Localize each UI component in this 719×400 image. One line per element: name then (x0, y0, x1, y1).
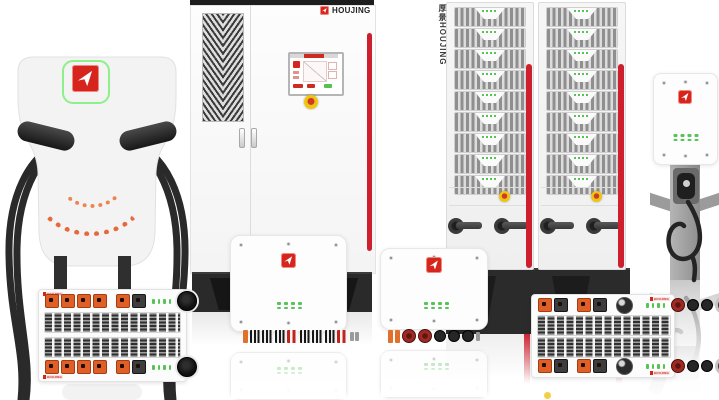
module-led-dots (482, 115, 498, 117)
status-led-green (284, 367, 288, 370)
module-led-dots (482, 136, 498, 138)
module-vent-notch (475, 176, 505, 187)
module-brand-mark: HOUJING (43, 375, 63, 379)
emergency-stop-button[interactable] (304, 95, 318, 109)
orange-connector[interactable] (45, 294, 59, 308)
wallbox-status-leds (424, 302, 449, 309)
status-led-green (431, 302, 435, 305)
orange-slim-connector[interactable] (395, 330, 400, 343)
orange-slim-connector[interactable] (243, 330, 248, 343)
status-led-green (646, 364, 649, 369)
orange-connector[interactable] (93, 294, 107, 308)
wallbox-inverter-a (230, 235, 347, 332)
orange-connector[interactable] (538, 298, 552, 312)
rack-power-module-slot (546, 133, 618, 153)
led-indicator-row (277, 372, 302, 375)
bracket-arm (650, 193, 670, 211)
socket-connector[interactable] (177, 357, 197, 377)
breaker-lever[interactable] (594, 222, 620, 229)
module-led-dots (482, 157, 498, 159)
led-indicator-row (277, 302, 302, 305)
rack-breaker-panel (447, 207, 533, 245)
module-vent-notch (475, 113, 505, 124)
orange-connector[interactable] (116, 294, 130, 308)
wallbox-status-leds (424, 363, 449, 370)
module-vent-notch (475, 8, 505, 19)
breaker-lever[interactable] (456, 222, 482, 229)
dark-connector[interactable] (132, 294, 146, 308)
orange-connector[interactable] (77, 294, 91, 308)
plane-glyph (77, 70, 94, 87)
wallbox-b-reflection (380, 350, 488, 398)
led-indicator-row (424, 302, 449, 305)
rack-tower-b (538, 2, 626, 270)
module-vent-notch (567, 8, 597, 19)
knob-connector[interactable] (616, 358, 633, 375)
breaker-switch[interactable] (448, 217, 486, 235)
orange-connector[interactable] (538, 359, 552, 373)
status-led-green (298, 372, 302, 375)
red-round-connector[interactable] (402, 329, 416, 343)
rack-brand-vertical: 厚景HOUJING (437, 4, 448, 84)
status-led-group (646, 303, 665, 308)
orange-connector[interactable] (93, 360, 107, 374)
module-vent-notch (475, 29, 505, 40)
status-led-green (284, 302, 288, 305)
houjing-logo-icon (320, 6, 329, 15)
rack-power-module-slot (454, 28, 526, 48)
module-vent-notch (567, 113, 597, 124)
connector-gap (570, 366, 575, 367)
status-led-green (445, 363, 449, 366)
charger-wallbox (653, 73, 718, 165)
rack-power-module-slot (546, 154, 618, 174)
cabinet-red-accent-stripe (367, 33, 372, 251)
led-indicator-row (673, 134, 698, 137)
rack-power-module-slot (546, 49, 618, 69)
module-vent-grille (44, 312, 181, 333)
status-led-green (652, 364, 655, 369)
screen-button-red[interactable] (307, 84, 315, 88)
screen-top-bar (290, 54, 338, 58)
houjing-logo-icon (281, 253, 296, 268)
module-vent-notch (567, 50, 597, 61)
screen-logo-chip (293, 61, 300, 68)
fins-connector[interactable] (250, 330, 261, 343)
module-vent-grille (44, 337, 181, 358)
status-led-green (424, 302, 428, 305)
houjing-logo-icon (426, 257, 442, 273)
plane-glyph (284, 256, 294, 266)
pile-leg (54, 256, 67, 292)
breaker-lever[interactable] (548, 222, 574, 229)
rack-estop-button[interactable] (499, 191, 510, 202)
socket-connector[interactable] (177, 291, 197, 311)
status-led-green (277, 372, 281, 375)
status-led-green (424, 363, 428, 366)
status-led-green (687, 139, 691, 142)
status-led-green (657, 303, 660, 308)
status-led-green (298, 307, 302, 310)
black-round-connector[interactable] (701, 360, 713, 372)
screen-menu-chip (293, 76, 299, 79)
rack-reflection-estop (544, 392, 551, 399)
wallbox-a-reflection (230, 352, 347, 400)
rack-power-module-slot (546, 112, 618, 132)
rack-power-module-slot (546, 7, 618, 27)
cabinet-vent-grille (202, 13, 244, 122)
cabinet-door-handle-right[interactable] (251, 128, 257, 148)
connector-gap (609, 305, 614, 306)
status-led-green (284, 307, 288, 310)
black-round-connector[interactable] (701, 299, 713, 311)
connector-gap (570, 305, 575, 306)
module-led-dots (574, 136, 590, 138)
module-led-dots (574, 10, 590, 12)
module-stack (447, 3, 533, 195)
connector-gap (609, 366, 614, 367)
status-led-green (657, 364, 660, 369)
status-led-group (646, 364, 665, 369)
wallbox-status-leds (277, 367, 302, 374)
status-led-green (438, 307, 442, 310)
breaker-switch[interactable] (540, 217, 578, 235)
screen-side-chip (328, 62, 337, 70)
status-led-green (438, 302, 442, 305)
rack-estop-panel (449, 187, 531, 206)
fins-connector[interactable] (325, 330, 336, 343)
fins-connector[interactable] (312, 330, 323, 343)
module-vent-notch (567, 71, 597, 82)
red-round-connector[interactable] (418, 329, 432, 343)
red-round-connector[interactable] (671, 298, 685, 312)
module-led-dots (574, 31, 590, 33)
plane-glyph (322, 8, 328, 14)
status-led-green (663, 364, 666, 369)
status-led-green (694, 139, 698, 142)
status-led-group (152, 365, 171, 370)
module-led-dots (574, 52, 590, 54)
module-connector-row (532, 297, 674, 313)
red-round-connector[interactable] (671, 359, 685, 373)
gray-slim-connector[interactable] (355, 332, 359, 341)
module-vent-notch (475, 92, 505, 103)
rack-red-stripe (618, 64, 624, 268)
status-led-green (284, 372, 288, 375)
red-fins-connector[interactable] (337, 330, 348, 343)
led-indicator-row (424, 363, 449, 366)
orange-slim-connector[interactable] (388, 330, 393, 343)
hmi-touchscreen[interactable] (288, 52, 344, 96)
module-led-dots (482, 31, 498, 33)
orange-connector[interactable] (577, 298, 591, 312)
black-round-connector[interactable] (687, 299, 699, 311)
vent-left-half (203, 14, 223, 121)
dark-connector[interactable] (593, 359, 607, 373)
rack-power-module-slot (454, 133, 526, 153)
status-led-green (163, 365, 166, 370)
module-led-dots (482, 178, 498, 180)
dark-connector[interactable] (554, 298, 568, 312)
knob-connector[interactable] (616, 297, 633, 314)
fins-connector[interactable] (262, 330, 273, 343)
pile-reflection (62, 384, 142, 400)
orange-connector[interactable] (45, 360, 59, 374)
status-led-green (646, 303, 649, 308)
rack-breaker-panel (539, 207, 625, 245)
fins-connector[interactable] (300, 330, 311, 343)
module-vent-notch (567, 92, 597, 103)
module-vent-grille (537, 337, 671, 358)
orange-connector[interactable] (61, 360, 75, 374)
module-brand-mark: HOUJING (650, 371, 670, 375)
dark-connector[interactable] (554, 359, 568, 373)
status-led-green (445, 368, 449, 371)
charging-gun-right (117, 119, 178, 152)
plane-glyph (681, 93, 690, 102)
led-indicator-row (424, 368, 449, 371)
status-led-green (291, 367, 295, 370)
screen-menu-chip (293, 71, 299, 74)
status-led-green (680, 139, 684, 142)
status-led-green (673, 134, 677, 137)
orange-connector[interactable] (577, 359, 591, 373)
black-round-connector[interactable] (687, 360, 699, 372)
led-indicator-row (424, 307, 449, 310)
status-led-green (431, 368, 435, 371)
module-led-dots (482, 94, 498, 96)
cabinet-door-handle-left[interactable] (239, 128, 245, 148)
status-led-green (158, 365, 161, 370)
module-led-dots (574, 73, 590, 75)
module-vent-notch (567, 29, 597, 40)
fins-connector[interactable] (275, 330, 286, 343)
status-led-green (663, 303, 666, 308)
module-led-dots (574, 115, 590, 117)
status-led-green (163, 299, 166, 304)
module-vent-notch (567, 134, 597, 145)
status-led-green (152, 299, 155, 304)
dark-connector[interactable] (593, 298, 607, 312)
screen-chart-area (303, 61, 327, 82)
module-vent-notch (475, 50, 505, 61)
rack-power-module-slot (546, 70, 618, 90)
status-led-green (152, 365, 155, 370)
orange-connector[interactable] (61, 294, 75, 308)
status-led-green (687, 134, 691, 137)
connector-gap (635, 305, 640, 306)
rack-power-module-slot (454, 112, 526, 132)
module-stack (539, 3, 625, 195)
status-led-green (438, 368, 442, 371)
led-indicator-row (673, 139, 698, 142)
module-vent-grille (537, 315, 671, 336)
wallbox-inverter-b (380, 248, 488, 330)
module-vent-notch (567, 176, 597, 187)
status-led-green (673, 139, 677, 142)
connector-gap (109, 301, 114, 302)
orange-connector[interactable] (77, 360, 91, 374)
led-indicator-row (277, 367, 302, 370)
status-led-green (694, 134, 698, 137)
black-round-connector[interactable] (448, 330, 460, 342)
module-led-dots (574, 94, 590, 96)
charger-status-leds (673, 134, 698, 141)
module-vent-notch (567, 155, 597, 166)
wallbox-b-connector-row (388, 327, 480, 345)
status-led-green (277, 307, 281, 310)
module-led-dots (574, 178, 590, 180)
status-led-green (424, 307, 428, 310)
module-vent-notch (475, 71, 505, 82)
module-vent-notch (475, 155, 505, 166)
status-led-green (445, 307, 449, 310)
status-led-green (298, 302, 302, 305)
module-connector-row (39, 293, 186, 309)
cabinet-brand-label: HOUJING (332, 6, 371, 15)
led-indicator-row (277, 307, 302, 310)
rack-estop-button[interactable] (591, 191, 602, 202)
rack-estop-panel (541, 187, 623, 206)
rack-power-module-slot (454, 91, 526, 111)
screen-top-bar-accent (304, 54, 324, 58)
rack-power-module-slot (454, 70, 526, 90)
connector-gap (109, 367, 114, 368)
status-led-green (680, 134, 684, 137)
rack-power-module-slot (454, 154, 526, 174)
status-led-green (652, 303, 655, 308)
status-led-green (424, 368, 428, 371)
status-led-group (152, 299, 171, 304)
module-led-dots (482, 10, 498, 12)
rack-power-module-a: HOUJING HOUJING (38, 289, 187, 382)
orange-connector[interactable] (116, 360, 130, 374)
status-led-green (445, 302, 449, 305)
status-led-green (431, 307, 435, 310)
black-round-connector[interactable] (434, 330, 446, 342)
houjing-logo-icon (678, 90, 692, 104)
wallbox-a-connector-row (243, 329, 359, 344)
status-led-green (277, 367, 281, 370)
cabinet-brand: HOUJING (320, 6, 371, 15)
status-led-green (298, 367, 302, 370)
status-led-green (169, 365, 172, 370)
module-vent-notch (475, 134, 505, 145)
vent-right-half (223, 14, 243, 121)
rack-reflection-stripe (524, 332, 530, 384)
bracket-arm (700, 193, 719, 211)
status-led-green (291, 307, 295, 310)
rack-power-module-slot (454, 49, 526, 69)
red-fins-connector[interactable] (287, 330, 298, 343)
status-led-green (431, 363, 435, 366)
houjing-logo-icon (72, 65, 99, 92)
breaker-lever[interactable] (502, 222, 528, 229)
rack-red-stripe (526, 64, 532, 268)
houjing-product-lineup: HOUJING (0, 0, 719, 400)
status-led-green (291, 372, 295, 375)
module-led-dots (482, 52, 498, 54)
module-led-dots (574, 157, 590, 159)
rack-power-module-b: HOUJING HOUJING (531, 294, 675, 378)
status-led-green (158, 299, 161, 304)
dark-connector[interactable] (132, 360, 146, 374)
gray-slim-connector[interactable] (350, 332, 354, 341)
black-round-connector[interactable] (462, 330, 474, 342)
status-led-green (169, 299, 172, 304)
gun-ring (683, 180, 690, 187)
wallbox-status-leds (277, 302, 302, 309)
status-led-green (291, 302, 295, 305)
screen-side-chip (328, 71, 337, 79)
module-led-dots (482, 73, 498, 75)
plane-glyph (429, 260, 439, 270)
pile-leg (118, 256, 131, 292)
connector-gap (635, 366, 640, 367)
gray-slim-connector[interactable] (476, 332, 480, 341)
screen-button-green[interactable] (324, 84, 332, 88)
status-led-green (277, 302, 281, 305)
screen-button-red[interactable] (293, 84, 303, 88)
rack-power-module-slot (546, 28, 618, 48)
rack-power-module-slot (546, 91, 618, 111)
status-led-green (438, 363, 442, 366)
rack-tower-a (446, 2, 534, 270)
module-connector-row (39, 359, 186, 375)
rack-power-module-slot (454, 7, 526, 27)
